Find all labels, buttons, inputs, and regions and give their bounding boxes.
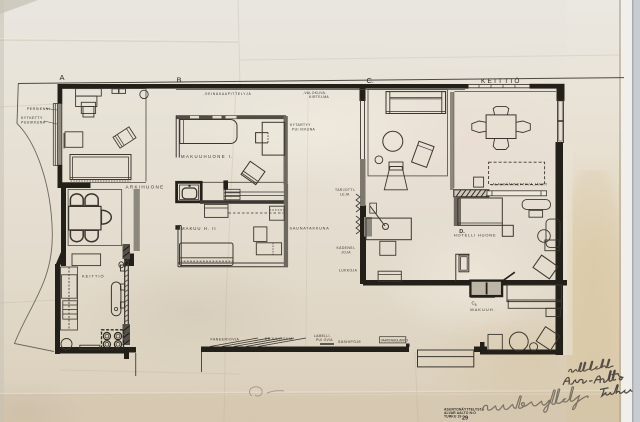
svg-text:C.: C. <box>367 76 375 85</box>
svg-text:PUUIKKUNA: PUUIKKUNA <box>21 121 46 125</box>
svg-text:B.: B. <box>177 76 184 85</box>
svg-text:SÄSHIPÖJE: SÄSHIPÖJE <box>338 340 362 344</box>
svg-text:PUI OVIA: PUI OVIA <box>316 338 333 342</box>
svg-text:ERJULITOVIA: ERJULITOVIA <box>265 337 293 341</box>
svg-text:KEITTIÖ: KEITTIÖ <box>481 77 522 85</box>
svg-text:PERSIENNI: PERSIENNI <box>27 107 50 111</box>
svg-text:MAKUU H. II: MAKUU H. II <box>181 226 217 231</box>
svg-text:FANEERIOVIA: FANEERIOVIA <box>211 338 240 342</box>
svg-text:KEITTIÖ: KEITTIÖ <box>82 274 105 279</box>
svg-text:HOTELLI HUONE: HOTELLI HUONE <box>454 233 497 238</box>
svg-text:LUKKOJA: LUKKOJA <box>339 269 358 273</box>
svg-text:,SEINÄKAAPITTELYJÄ: ,SEINÄKAAPITTELYJÄ <box>204 92 252 96</box>
svg-text:KYTKETTY: KYTKETTY <box>21 116 43 120</box>
svg-text:SAUNATAKKUNA: SAUNATAKKUNA <box>290 227 330 231</box>
svg-text:VAATENAULAKKO: VAATENAULAKKO <box>381 339 409 343</box>
svg-text:,ALASKÄÄNNETTÄVÄ,JÄNKY: ,ALASKÄÄNNETTÄVÄ,JÄNKY <box>491 183 548 187</box>
svg-text:LEJA: LEJA <box>340 192 350 196</box>
svg-text:29: 29 <box>462 416 468 422</box>
svg-text:TURKU 19: TURKU 19 <box>444 415 461 419</box>
svg-text:PUI IKKUNA: PUI IKKUNA <box>292 127 316 131</box>
svg-text:ARKIHUONE: ARKIHUONE <box>126 185 165 190</box>
svg-text:KIRTELMA: KIRTELMA <box>309 95 329 99</box>
svg-text:MAKUUHUONE I.: MAKUUHUONE I. <box>181 154 234 159</box>
svg-text:MAKUUH.: MAKUUH. <box>470 307 495 312</box>
svg-text:JOJA: JOJA <box>341 250 351 254</box>
svg-text:A: A <box>60 73 65 82</box>
